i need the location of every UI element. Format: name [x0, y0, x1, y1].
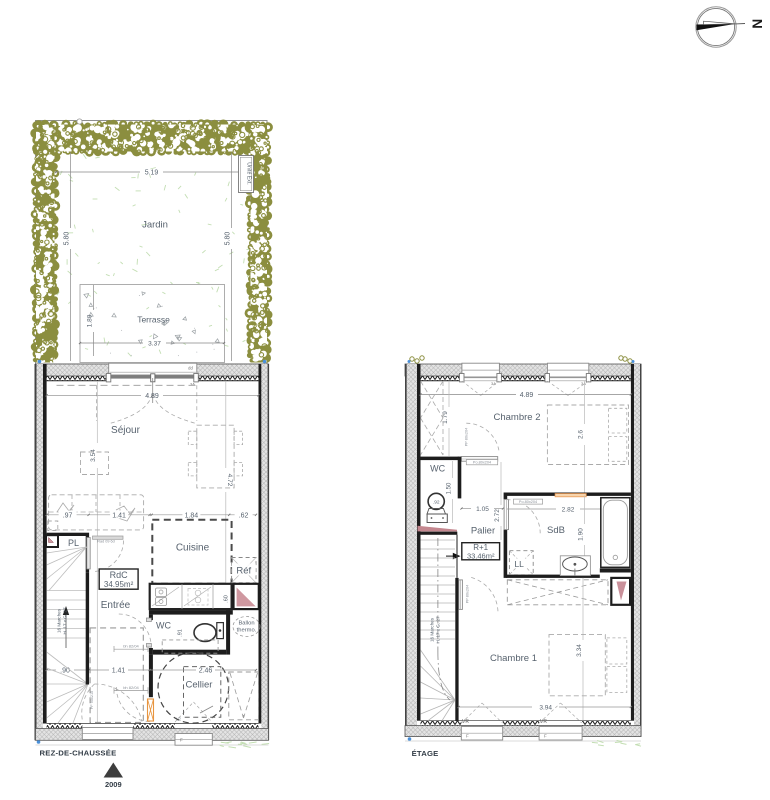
- svg-text:1.84: 1.84: [185, 512, 199, 519]
- svg-text:Po.80x204: Po.80x204: [519, 500, 537, 504]
- svg-text:33.46m²: 33.46m²: [467, 551, 495, 560]
- svg-text:Cellier: Cellier: [186, 680, 213, 691]
- svg-text:PP 80x204: PP 80x204: [466, 585, 470, 604]
- svg-text:4.89: 4.89: [520, 392, 534, 399]
- svg-text:PP 80x204: PP 80x204: [464, 428, 468, 447]
- svg-text:16 Marches: 16 Marches: [430, 617, 435, 642]
- svg-text:1.80: 1.80: [86, 314, 93, 327]
- svg-text:5.19: 5.19: [145, 170, 159, 177]
- svg-text:Rad 09 6d: Rad 09 6d: [97, 539, 115, 543]
- svg-text:RdC: RdC: [110, 570, 129, 580]
- svg-text:2009: 2009: [105, 780, 122, 789]
- svg-text:H. 17 x G. 27: H. 17 x G. 27: [436, 616, 441, 644]
- svg-text:Cuisine: Cuisine: [176, 543, 210, 554]
- svg-text:.92: .92: [433, 499, 440, 505]
- svg-text:3A: 3A: [190, 382, 195, 387]
- svg-text:1.90: 1.90: [577, 528, 584, 541]
- svg-text:bh 82/04: bh 82/04: [123, 685, 139, 690]
- svg-text:3.34: 3.34: [576, 644, 583, 657]
- svg-text:16 Marches: 16 Marches: [57, 608, 62, 633]
- svg-text:3.54: 3.54: [90, 449, 97, 462]
- svg-text:Séjour: Séjour: [111, 425, 141, 436]
- svg-text:4.72: 4.72: [226, 474, 233, 487]
- svg-text:Ballon: Ballon: [238, 621, 254, 627]
- svg-text:.60: .60: [224, 595, 230, 603]
- svg-text:5.80: 5.80: [224, 232, 231, 246]
- svg-text:1.41: 1.41: [112, 668, 126, 675]
- svg-text:1.50: 1.50: [446, 482, 452, 494]
- svg-text:Chambre 1: Chambre 1: [490, 653, 537, 664]
- svg-text:PL: PL: [68, 538, 79, 548]
- svg-text:1.05: 1.05: [476, 506, 489, 513]
- svg-text:VR: VR: [540, 719, 547, 725]
- svg-text:2.82: 2.82: [562, 507, 575, 514]
- svg-text:2.72: 2.72: [494, 509, 501, 522]
- svg-text:ÉTAGE: ÉTAGE: [412, 749, 439, 758]
- svg-text:Entrée: Entrée: [101, 600, 131, 611]
- svg-text:Palier: Palier: [471, 526, 495, 537]
- svg-text:H. 17 x G. 27: H. 17 x G. 27: [63, 607, 68, 635]
- svg-text:F: F: [544, 734, 547, 739]
- svg-text:Terrasse: Terrasse: [137, 315, 170, 325]
- svg-text:2.46: 2.46: [199, 668, 213, 675]
- svg-text:Réf: Réf: [236, 566, 251, 577]
- svg-text:Jardin: Jardin: [142, 220, 168, 231]
- svg-text:4.89: 4.89: [145, 393, 159, 400]
- svg-text:Unité Ext.: Unité Ext.: [246, 162, 252, 185]
- svg-text:2.6: 2.6: [577, 430, 584, 439]
- svg-text:34.95m²: 34.95m²: [104, 580, 134, 589]
- svg-text:LL: LL: [514, 559, 524, 569]
- svg-text:3.37: 3.37: [148, 340, 161, 347]
- svg-text:WC: WC: [430, 464, 445, 474]
- svg-text:5.80: 5.80: [63, 232, 70, 246]
- svg-text:N: N: [750, 19, 765, 29]
- svg-text:Po.80x204: Po.80x204: [473, 461, 491, 465]
- svg-text:.91: .91: [177, 629, 183, 637]
- svg-text:F: F: [180, 738, 183, 743]
- svg-text:.97: .97: [63, 512, 73, 519]
- svg-text:thermo.: thermo.: [237, 628, 257, 634]
- svg-text:Chambre 2: Chambre 2: [494, 412, 541, 423]
- svg-text:F: F: [466, 734, 469, 739]
- svg-text:bh 82/04: bh 82/04: [123, 644, 139, 649]
- svg-text:3.94: 3.94: [539, 705, 552, 712]
- svg-text:1.41: 1.41: [112, 512, 126, 519]
- svg-text:SdB: SdB: [547, 525, 565, 536]
- svg-text:.62: .62: [239, 512, 249, 519]
- svg-text:WC: WC: [156, 621, 171, 631]
- svg-text:dd: dd: [188, 366, 193, 371]
- svg-text:REZ-DE-CHAUSSÉE: REZ-DE-CHAUSSÉE: [40, 749, 117, 758]
